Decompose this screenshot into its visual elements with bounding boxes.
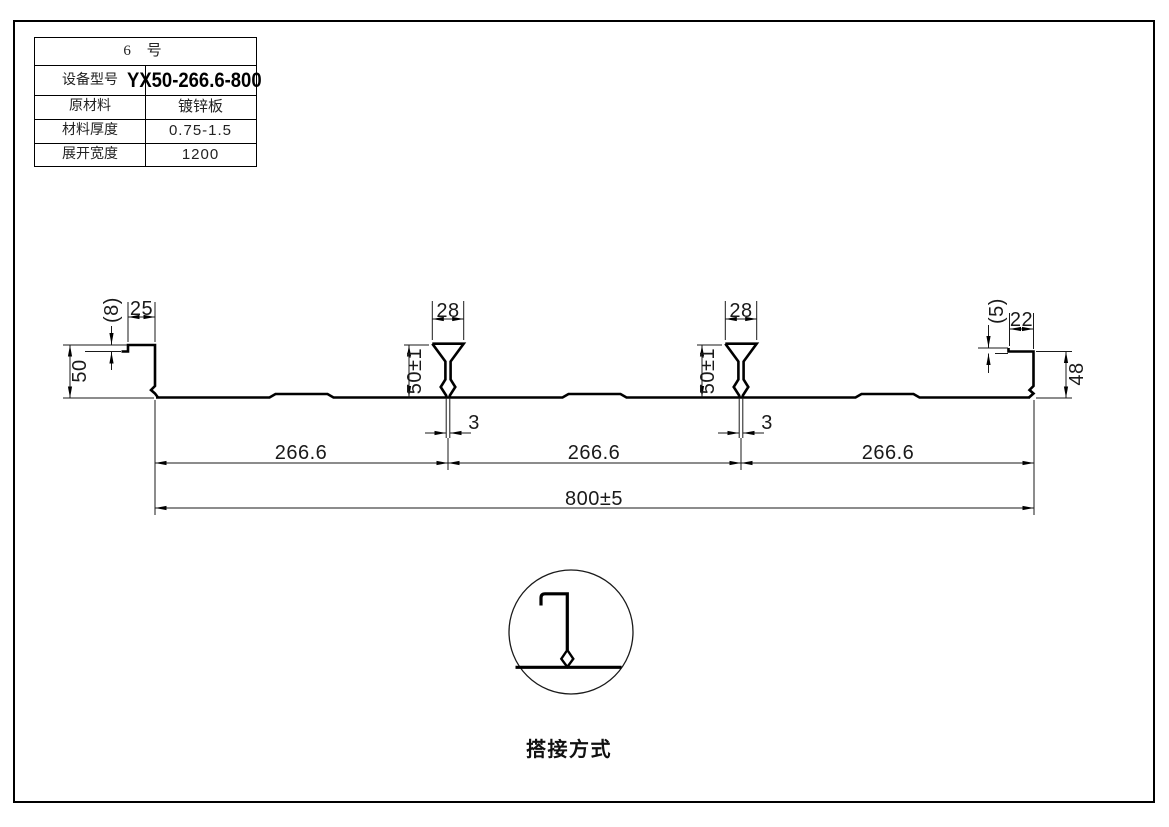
center-rib-1 [432,344,463,398]
lap-rib-diamond [561,650,573,667]
dim-text-span3: 266.6 [862,442,915,464]
dim-text-rib2-slot: 3 [761,412,773,434]
dimension-lines [63,301,1072,515]
right-edge-rib [1009,348,1034,398]
upper-sheet-hook [541,594,567,650]
dim-text-rib2-top: 28 [729,300,752,322]
dim-text-left-step: (8) [101,297,123,323]
dim-text-rib1-top: 28 [436,300,459,322]
lap-joint-detail [509,570,633,694]
dim-text-rib2-height: 50±1 [697,348,719,394]
lap-detail-caption: 搭接方式 [489,733,649,762]
dim-text-overall: 800±5 [565,488,623,510]
dim-text-span2: 266.6 [568,442,621,464]
dim-text-right-step: (5) [986,298,1008,324]
dimension-labels: 25 (8) 50 28 50±1 3 28 50±1 3 22 (5) 48 … [69,297,1088,510]
left-edge-rib [122,345,159,398]
drawing-sheet: 6 号 设备型号 YX50-266.6-800 原材料 镀锌板 材料厚度 0.7… [0,0,1169,827]
dim-text-left-lip: 25 [130,298,153,320]
center-rib-2 [725,344,756,398]
dim-text-right-lip: 22 [1010,309,1033,331]
panel-baseline [156,394,1030,398]
dim-text-rib1-slot: 3 [468,412,480,434]
dim-text-rib1-height: 50±1 [404,348,426,394]
dim-text-right-height: 48 [1066,362,1088,385]
panel-cross-section [122,344,1034,398]
dim-text-left-height: 50 [69,359,91,382]
detail-circle [509,570,633,694]
profile-drawing: 25 (8) 50 28 50±1 3 28 50±1 3 22 (5) 48 … [0,0,1169,827]
dim-text-span1: 266.6 [275,442,328,464]
